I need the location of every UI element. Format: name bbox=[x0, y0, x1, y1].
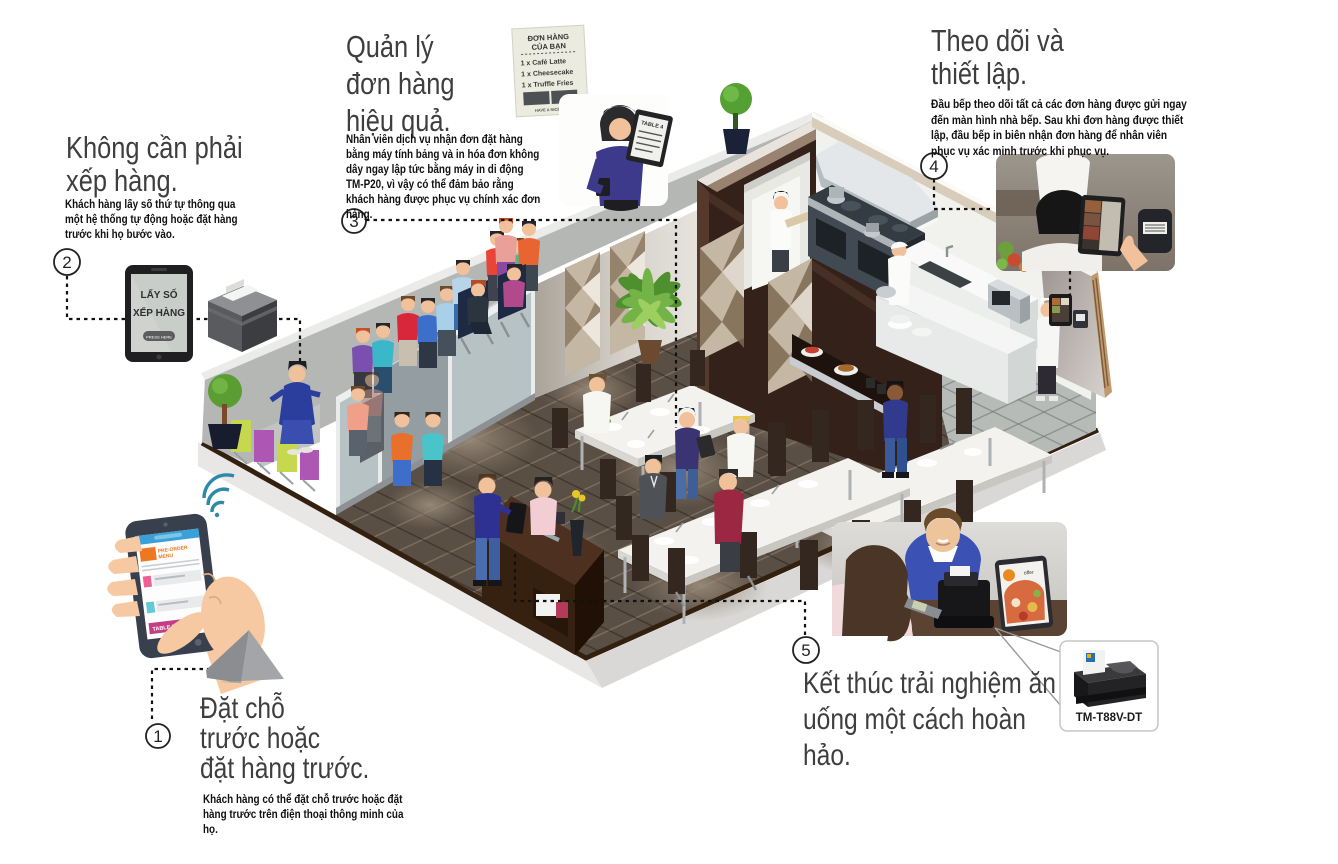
svg-text:LẤY SỐ: LẤY SỐ bbox=[140, 287, 177, 301]
svg-text:CỦA BẠN: CỦA BẠN bbox=[531, 41, 566, 52]
svg-text:4: 4 bbox=[929, 157, 938, 176]
svg-text:PRESS HERE: PRESS HERE bbox=[146, 335, 172, 340]
svg-text:XẾP HÀNG: XẾP HÀNG bbox=[133, 306, 185, 319]
svg-text:5: 5 bbox=[801, 641, 810, 660]
svg-text:offer: offer bbox=[1024, 570, 1035, 577]
svg-text:1: 1 bbox=[153, 727, 162, 746]
svg-text:TM-T88V-DT: TM-T88V-DT bbox=[1076, 712, 1142, 724]
svg-text:2: 2 bbox=[62, 253, 71, 272]
